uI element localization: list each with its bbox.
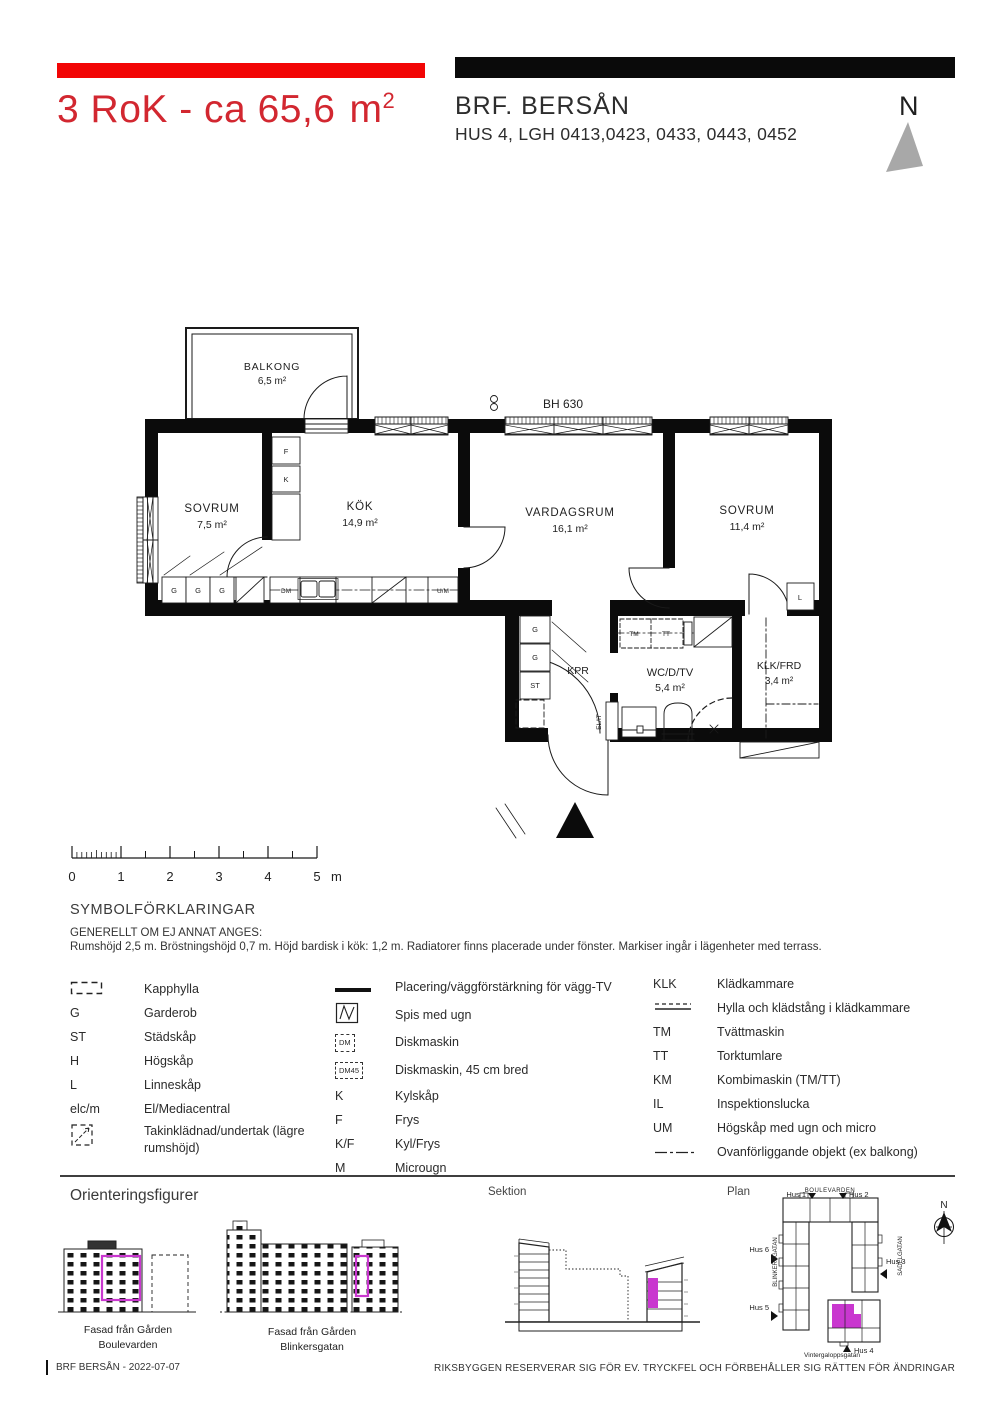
legend-symbol: K/F [335,1137,395,1151]
room-area-vardagsrum: 16,1 m² [552,523,588,535]
legend-symbol: elc/m [70,1102,144,1116]
room-label-sovrum2: SOVRUM [719,505,774,517]
legend-label: Garderob [144,1005,324,1022]
north-indicator: N [886,91,923,172]
room-label-kok: KÖK [347,501,374,513]
entrance-triangle-icon [556,802,594,838]
compass-icon: N [935,1200,954,1244]
facade2-caption-line1: Fasad från Gården [268,1326,356,1338]
legend-label: Högskåp med ugn och micro [717,1120,876,1137]
sektion-label: Sektion [488,1186,526,1198]
project-subtitle: HUS 4, LGH 0413,0423, 0433, 0443, 0452 [455,124,797,145]
room-label-vardagsrum: VARDAGSRUM [525,507,615,519]
legend-symbol: M [335,1161,395,1175]
kapphylla-symbol-icon [70,980,144,999]
fixture-label-tm: TM [629,631,638,638]
balcony-outline [186,328,358,419]
legend-label: Kombimaskin (TM/TT) [717,1072,841,1089]
scale-tick: 5 [313,869,320,884]
fixtures [162,396,819,839]
legend-row: DM45 Diskmaskin, 45 cm bred [335,1057,653,1085]
fixture-label-tt: TT [662,631,670,638]
unit-text: m [349,88,382,131]
scale-tick: 1 [117,869,124,884]
legend-label: Frys [395,1112,419,1129]
legend-row: elc/mEl/Mediacentral [70,1097,332,1121]
room-label-balkong: BALKONG [244,361,300,373]
legend-label: Hylla och klädstång i klädkammare [717,1000,910,1017]
accent-red-bar [57,63,425,78]
legend-row: LLinneskåp [70,1073,332,1097]
scale-tick: 3 [215,869,222,884]
fixture-label-elit: EL/IT [596,714,603,730]
room-label-sovrum1: SOVRUM [184,503,239,515]
legend-symbol: ST [70,1030,144,1044]
balcony-door [304,376,347,419]
legend-label: Kapphylla [144,981,324,998]
scale-tick: 4 [264,869,271,884]
north-arrow-icon [886,122,923,172]
room-area-kok: 14,9 m² [342,517,378,529]
legend-row: Ovanförliggande objekt (ex balkong) [653,1140,953,1164]
legend-symbol: L [70,1078,144,1092]
fixture-label-g: G [171,586,177,595]
tv-wall-symbol-icon [335,981,395,995]
fixture-label-dm: DM [281,588,291,595]
legend-row: KKylskåp [335,1084,653,1108]
legend-label: Diskmaskin [395,1034,459,1051]
legend-row: UMHögskåp med ugn och micro [653,1116,953,1140]
legend-column-2: Placering/väggförstärkning för vägg-TV S… [335,974,653,1180]
fixture-label-st: ST [530,681,540,690]
scale-unit: m [331,869,342,884]
legend-symbol: UM [653,1121,717,1135]
fixture-label-g: G [532,625,538,634]
scale-tick: 2 [166,869,173,884]
overhead-object-symbol-icon [653,1145,717,1159]
legend-label: Torktumlare [717,1048,782,1065]
dishwasher-symbol-icon: DM [335,1034,395,1052]
page-title: 3 RoK - ca 65,6m2 [57,88,395,132]
facade2-caption-line2: Blinkersgatan [280,1341,344,1353]
project-title: BRF. BERSÅN [455,92,630,121]
kitchen-door [464,527,505,568]
legend-symbol: KM [653,1073,717,1087]
fixture-label-k: K [283,475,288,484]
legend-row: ILInspektionslucka [653,1092,953,1116]
section-figure [505,1239,700,1331]
apartment-size-text: 3 RoK - ca 65,6 [57,88,335,131]
legend-label: Ovanförliggande objekt (ex balkong) [717,1144,918,1161]
legend-symbol: K [335,1089,395,1103]
scale-bar: 0 1 2 3 4 5 m [68,846,341,884]
legend-row: KMKombimaskin (TM/TT) [653,1068,953,1092]
window-height-label: BH 630 [543,397,583,411]
street-label-boulevarden: BOULEVARDEN [805,1188,855,1194]
legend-label: Kylskåp [395,1088,439,1105]
room-area-sovrum2: 11,4 m² [730,521,765,533]
closet-door [749,574,789,614]
legend-symbol: KLK [653,977,717,991]
floorplan-labels: BH 630 BALKONG 6,5 m² SOVRUM 7,5 m² KÖK … [171,361,802,730]
legend-label: Linneskåp [144,1077,324,1094]
legend-label: Tvättmaskin [717,1024,784,1041]
legend-column-3: KLKKlädkammare Hylla och klädstång i klä… [653,972,953,1164]
orientation-heading: Orienteringsfigurer [70,1187,198,1205]
room-label-wc: WC/D/TV [647,667,694,679]
hus-label-1: Hus 1 [786,1190,806,1199]
legend-label: El/Mediacentral [144,1101,324,1118]
street-label-vintergaloppsgatan: Vintergaloppsgatan [804,1352,860,1359]
legend-label: Städskåp [144,1029,324,1046]
symbols-heading: SYMBOLFÖRKLARINGAR [70,902,950,918]
general-note-1: GENERELLT OM EJ ANNAT ANGES: [70,927,950,939]
legend-row: TTTorktumlare [653,1044,953,1068]
legend-row: STStädskåp [70,1025,332,1049]
fixture-label-g: G [219,586,225,595]
takinkladnad-symbol-icon [70,1123,144,1152]
legend-row: HHögskåp [70,1049,332,1073]
legend-row: Hylla och klädstång i klädkammare [653,996,953,1020]
legend-symbol: G [70,1006,144,1020]
legend-symbol: IL [653,1097,717,1111]
floor-plan: BH 630 BALKONG 6,5 m² SOVRUM 7,5 m² KÖK … [137,328,832,838]
legend-label: Placering/väggförstärkning för vägg-TV [395,979,612,996]
room-area-sovrum1: 7,5 m² [197,519,227,531]
stove-symbol-icon [335,1002,395,1028]
legend-label: Klädkammare [717,976,794,993]
legend-row: Kapphylla [70,977,332,1001]
legend-row: Takinklädnad/undertak (lägre rumshöjd) [70,1121,332,1165]
site-plan-hus4 [828,1300,880,1346]
legend-row: Placering/väggförstärkning för vägg-TV [335,974,653,1002]
hus-label-5: Hus 5 [749,1303,769,1312]
legend-symbol: TM [653,1025,717,1039]
fixture-label-f: F [284,447,289,456]
section-divider [60,1175,955,1177]
street-label-sadelgatan: SADELGATAN [898,1236,904,1275]
plan-label: Plan [727,1186,750,1198]
room-label-klk: KLK/FRD [757,660,802,672]
symbols-section: SYMBOLFÖRKLARINGAR GENERELLT OM EJ ANNAT… [70,902,950,955]
dishwasher45-symbol-icon: DM45 [335,1062,395,1080]
legend-row: K/FKyl/Frys [335,1132,653,1156]
legend-row: FFrys [335,1108,653,1132]
street-label-blinkersgatan: BLINKERSGATAN [773,1237,779,1286]
legend-row: Spis med ugn [335,1002,653,1030]
unit-sup: 2 [382,88,395,113]
hus-label-6: Hus 6 [749,1245,769,1254]
legend-symbol: TT [653,1049,717,1063]
room-label-kpr: KPR [567,665,589,677]
facade1-caption-line2: Boulevarden [99,1339,158,1351]
legend-row: GGarderob [70,1001,332,1025]
legend-label: Spis med ugn [395,1007,471,1024]
legend-label: Inspektionslucka [717,1096,809,1113]
legend-label: Kyl/Frys [395,1136,440,1153]
legend-symbol: H [70,1054,144,1068]
footer-bar-icon [46,1360,48,1375]
legend-symbol: F [335,1113,395,1127]
compass-north-label: N [940,1200,947,1211]
legend-row: KLKKlädkammare [653,972,953,996]
facade-1-figure: Fasad från Gården Boulevarden [58,1241,196,1351]
fixture-label-g: G [532,653,538,662]
footer-left-text: BRF BERSÅN - 2022-07-07 [56,1362,180,1373]
legend-label: Takinklädnad/undertak (lägre rumshöjd) [144,1123,324,1157]
legend-row: DM Diskmaskin [335,1029,653,1057]
legend-label: Diskmaskin, 45 cm bred [395,1062,528,1079]
legend-column-1: Kapphylla GGarderob STStädskåp HHögskåp … [70,977,332,1165]
scale-tick: 0 [68,869,75,884]
room-area-balkong: 6,5 m² [258,376,287,387]
floorplan-document-page: N [0,0,992,1403]
header-black-bar [455,57,955,78]
legend-row: TMTvättmaskin [653,1020,953,1044]
legend-label: Microugn [395,1160,446,1177]
site-plan-figure: Hus 1 Hus 2 Hus 3 Hus 4 Hus 5 Hus 6 BOUL… [749,1188,953,1359]
general-note-2: Rumshöjd 2,5 m. Bröstningshöjd 0,7 m. Hö… [70,941,950,953]
shelf-rod-symbol-icon [653,1001,717,1015]
facade1-caption-line1: Fasad från Gården [84,1324,172,1336]
room-area-wc: 5,4 m² [655,682,685,694]
room-area-klk: 3,4 m² [765,676,794,687]
facade-2-figure: Fasad från Gården Blinkersgatan [220,1221,404,1353]
footer-disclaimer: RIKSBYGGEN RESERVERAR SIG FÖR EV. TRYCKF… [434,1363,955,1374]
entrance-door [548,735,608,795]
north-label: N [899,91,919,121]
fixture-label-g: G [195,586,201,595]
fixture-label-um: U/M [437,588,449,595]
footer-document-id: BRF BERSÅN - 2022-07-07 [46,1360,180,1375]
fixture-label-l: L [798,593,802,602]
legend-label: Högskåp [144,1053,324,1070]
